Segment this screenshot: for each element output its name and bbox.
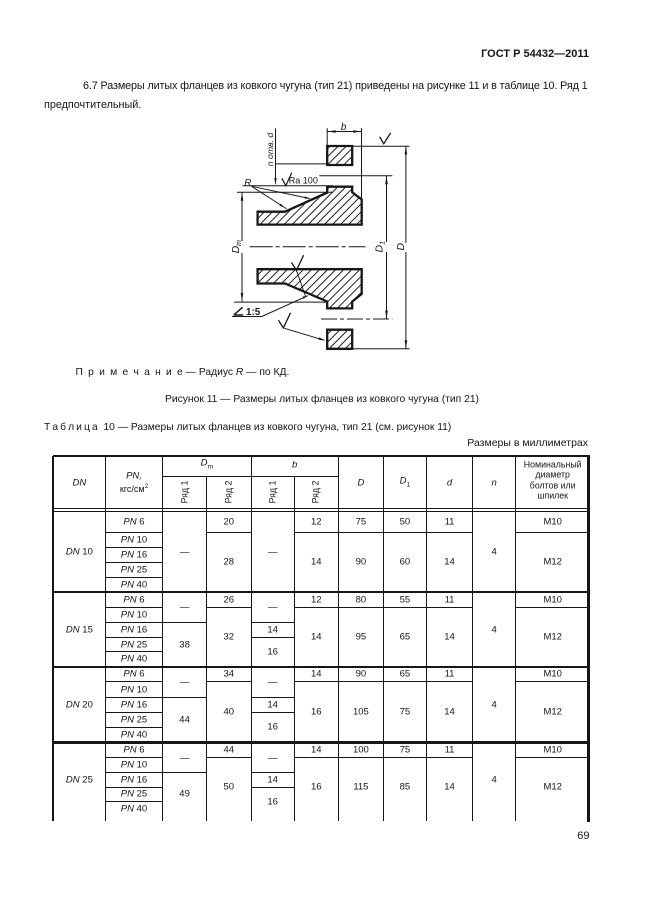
- svg-text:b: b: [341, 122, 347, 133]
- svg-text:n отв. d: n отв. d: [265, 132, 275, 167]
- svg-text:D1: D1: [373, 241, 386, 253]
- svg-text:Dm: Dm: [230, 240, 243, 254]
- svg-text:R: R: [244, 178, 251, 189]
- svg-text:1:5: 1:5: [246, 307, 261, 318]
- svg-text:Ra 100: Ra 100: [289, 175, 318, 185]
- svg-text:D: D: [395, 242, 407, 250]
